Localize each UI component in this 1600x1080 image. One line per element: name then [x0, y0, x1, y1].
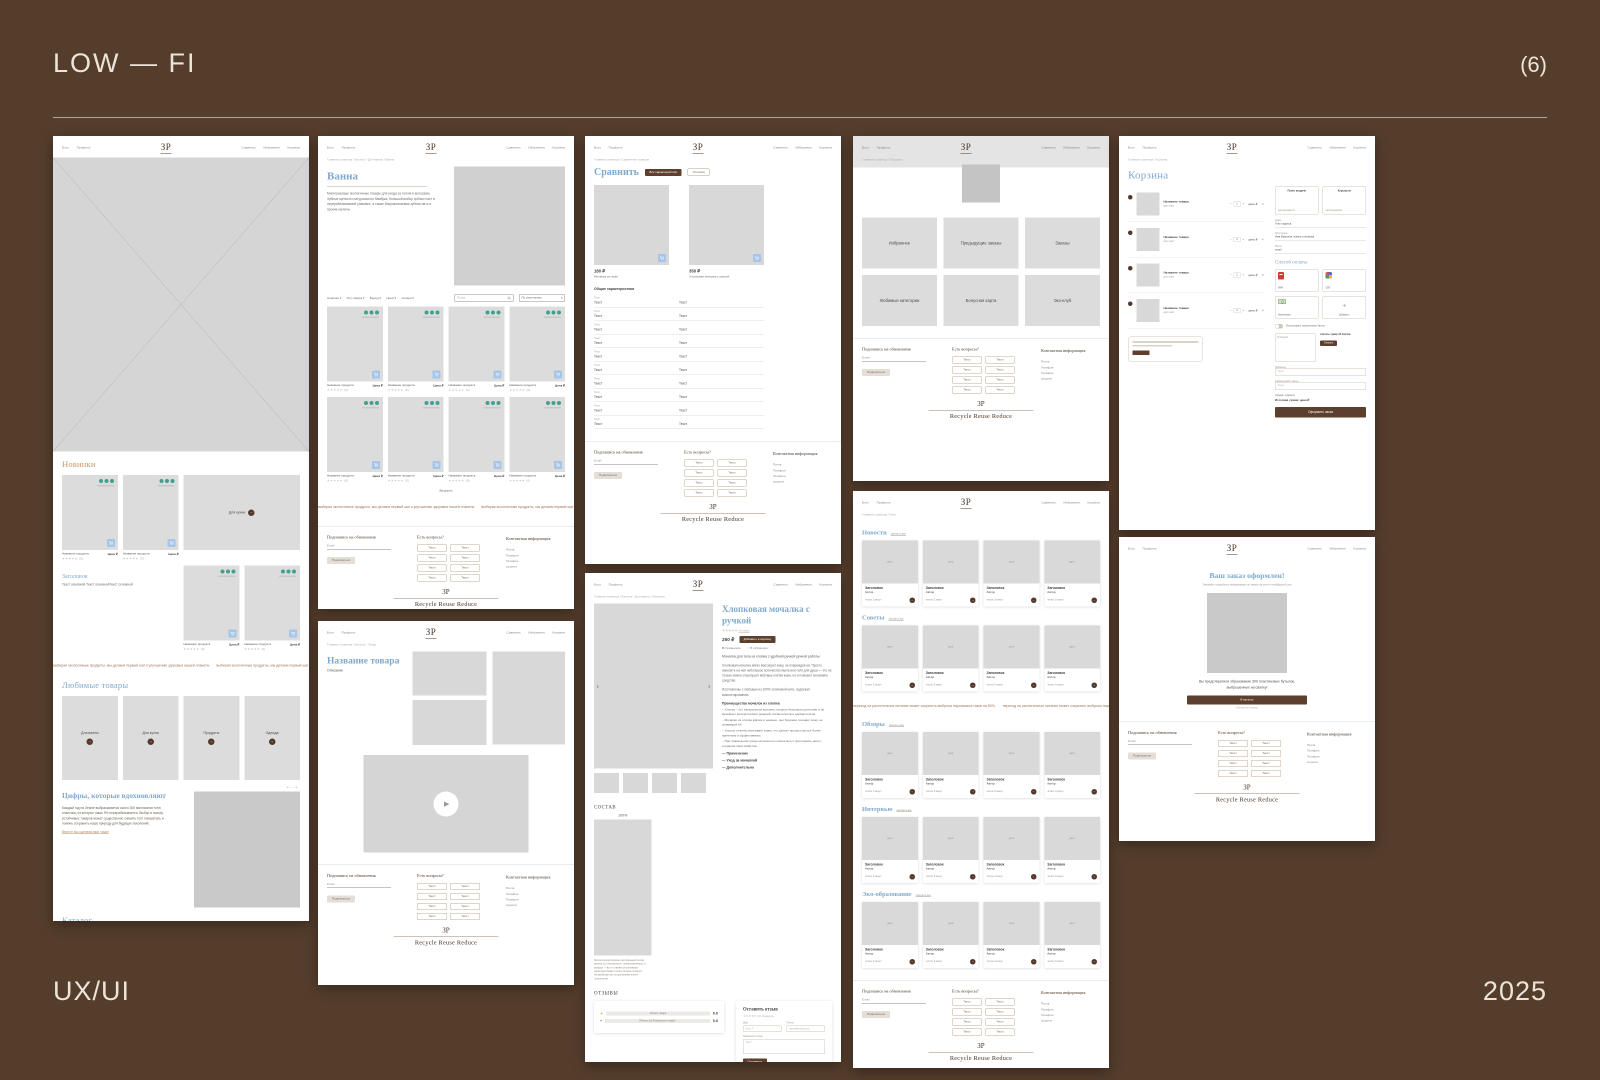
contact-line[interactable]: соцсети — [1041, 1019, 1100, 1025]
quantity-stepper[interactable]: −1+ — [1230, 202, 1244, 207]
faq-button[interactable]: Текст — [952, 999, 982, 1006]
nav-cart-link[interactable]: Корзина — [1354, 547, 1366, 550]
read-time: читать 5 минут — [865, 599, 882, 602]
product-rating: ★★★★★ (0) — [184, 648, 240, 652]
faq-button[interactable]: Текст — [985, 367, 1015, 374]
nav-favorites-link[interactable]: Избранное — [1063, 146, 1080, 149]
blog-card-title: Заголовок — [1047, 863, 1097, 867]
contact-line[interactable]: соцсети — [506, 565, 565, 571]
product-name: Название продукта — [509, 475, 536, 479]
faq-button[interactable]: Текст — [417, 893, 447, 900]
product-card[interactable]: Название продукта Цена ₽ ★★★★★ (0) — [449, 397, 505, 483]
breadcrumb[interactable]: Главная страница / Блог — [853, 513, 1109, 522]
faq-button[interactable]: Текст — [952, 1019, 982, 1026]
add-to-cart-button[interactable]: Добавить в корзину — [739, 636, 775, 643]
product-card[interactable]: Название продукта Цена ₽ ★★★★★ (0) — [244, 566, 300, 652]
carousel-arrows[interactable]: ←→ — [62, 784, 300, 790]
carousel-thumbnails[interactable] — [594, 773, 713, 793]
subscribe-button[interactable]: Подписаться — [862, 369, 890, 376]
faq-button[interactable]: Текст — [1251, 740, 1281, 747]
review-textarea[interactable]: Текст — [743, 1039, 825, 1054]
quantity-stepper[interactable]: −1+ — [1230, 273, 1244, 278]
email-input[interactable]: Email — [594, 460, 658, 465]
product-card[interactable]: Название продукта Цена ₽ ★★★★★ (0) — [123, 475, 179, 561]
faq-button[interactable]: Текст — [1218, 750, 1248, 757]
email-input[interactable]: name@email.com — [787, 1026, 826, 1033]
play-icon[interactable]: ▶ — [434, 791, 459, 816]
payment-option-cash[interactable]: Наличными — [1275, 296, 1319, 319]
add-to-cart-icon[interactable] — [433, 461, 441, 469]
blog-card[interactable]: дата Заголовок Автор читать 5 минут → — [1044, 902, 1100, 968]
faq-button[interactable]: Текст — [450, 883, 480, 890]
compare-product[interactable]: 350 ₽ Хлопковая мочалка с рюшей — [689, 185, 764, 279]
nav-profile-link[interactable]: Профиль — [609, 146, 623, 149]
nav-blog-link[interactable]: Блог — [62, 146, 69, 149]
nav-blog-link[interactable]: Блог — [594, 146, 601, 149]
logo[interactable]: ЗР — [426, 142, 437, 154]
filter-dropdown[interactable]: Новинки ▾ — [327, 296, 341, 300]
add-to-cart-icon[interactable] — [554, 371, 562, 379]
nav-compare-link[interactable]: Сравнить — [506, 631, 521, 634]
faq-button[interactable]: Текст — [417, 555, 447, 562]
add-to-cart-icon[interactable] — [372, 461, 380, 469]
see-all-link[interactable]: смотреть все — [896, 809, 911, 812]
questions-title: Есть вопросы? — [952, 989, 1015, 994]
breadcrumb[interactable]: Главная страница / Каталог / Для ванны /… — [318, 158, 574, 167]
contact-line[interactable]: соцсети — [1041, 377, 1100, 383]
compare-link[interactable]: ⇄ Сравнение — [722, 647, 741, 651]
blog-card[interactable]: дата Заголовок Автор читать 5 минут → — [1044, 626, 1100, 692]
category-banner-kitchen[interactable]: Для кухни→ — [184, 475, 301, 550]
prev-arrow-icon[interactable]: ‹ — [597, 682, 600, 691]
filter-dropdown[interactable]: Скидки ▾ — [401, 296, 413, 300]
email-input[interactable]: Email — [1128, 740, 1192, 745]
blog-card-author: Автор — [987, 676, 1037, 679]
faq-button[interactable]: Текст — [985, 999, 1015, 1006]
nav-blog-link[interactable]: Блог — [862, 146, 869, 149]
profile-avatar[interactable] — [962, 165, 1000, 203]
promo-input[interactable]: Текст — [1275, 369, 1366, 376]
see-all-link[interactable]: смотреть все — [891, 533, 906, 536]
nav-profile-link[interactable]: Профиль — [342, 146, 356, 149]
payment-option-mir[interactable]: МИР — [1275, 269, 1319, 292]
arrow-icon[interactable]: → — [970, 874, 976, 880]
arrow-icon[interactable]: → — [909, 598, 915, 604]
blog-card[interactable]: дата Заголовок Автор читать 5 минут → — [984, 541, 1040, 607]
product-card[interactable]: Название продукта Цена ₽ ★★★★★ (0) — [62, 475, 118, 561]
arrow-icon[interactable]: → — [1092, 959, 1098, 965]
search-input[interactable]: Поиск — [455, 295, 514, 302]
arrow-icon[interactable]: → — [1092, 683, 1098, 689]
faq-button[interactable]: Текст — [450, 575, 480, 582]
faq-button[interactable]: Текст — [450, 893, 480, 900]
blog-card[interactable]: дата Заголовок Автор читать 5 минут → — [1044, 817, 1100, 883]
arrow-icon[interactable]: → — [1092, 874, 1098, 880]
product-card[interactable]: Название продукта Цена ₽ ★★★★★ (0) — [327, 397, 383, 483]
footer-subscribe-block: Подпишись на обновления Email Подписатьс… — [1128, 730, 1192, 777]
faq-button[interactable]: Текст — [1251, 750, 1281, 757]
faq-button[interactable]: Текст — [417, 883, 447, 890]
nav-profile-link[interactable]: Профиль — [1143, 146, 1157, 149]
differences-button[interactable]: Отличия — [688, 169, 710, 177]
nav-compare-link[interactable]: Сравнить — [241, 146, 256, 149]
profile-tile[interactable]: Предыдущие заказы — [944, 218, 1019, 269]
wireframe-compare-page[interactable]: Блог Профиль ЗР Сравнить Избранное Корзи… — [585, 136, 841, 564]
nav-blog-link[interactable]: Блог — [594, 583, 601, 586]
blog-card[interactable]: дата Заголовок Автор читать 5 минут → — [862, 732, 918, 798]
product-image-placeholder — [509, 307, 565, 382]
nav-favorites-link[interactable]: Избранное — [528, 631, 545, 634]
faq-button[interactable]: Текст — [952, 387, 982, 394]
product-carousel[interactable]: ‹ › — [594, 604, 713, 769]
nav-cart-link[interactable]: Корзина — [553, 146, 565, 149]
accordion-item[interactable]: — Дополнительно — [722, 766, 832, 770]
recipient-input[interactable]: Имя Фамилия, номер телефона — [1275, 235, 1366, 241]
nav-blog-link[interactable]: Блог — [862, 501, 869, 504]
nav-favorites-link[interactable]: Избранное — [263, 146, 280, 149]
faq-button[interactable]: Текст — [1251, 760, 1281, 767]
faq-button[interactable]: Текст — [1218, 740, 1248, 747]
blog-card[interactable]: дата Заголовок Автор читать 5 минут → — [1044, 541, 1100, 607]
arrow-icon[interactable]: → — [1031, 874, 1037, 880]
product-card[interactable]: Название продукта Цена ₽ ★★★★★ (0) — [509, 397, 565, 483]
address-input[interactable]: Текст адреса — [1275, 222, 1366, 228]
nav-compare-link[interactable]: Сравнить — [773, 583, 788, 586]
remove-item-icon[interactable]: ✕ — [1261, 309, 1264, 313]
blog-card[interactable]: дата Заголовок Автор читать 5 минут → — [862, 817, 918, 883]
arrow-icon[interactable]: → — [970, 598, 976, 604]
faq-button[interactable]: Текст — [717, 480, 747, 487]
faq-button[interactable]: Текст — [450, 903, 480, 910]
nav-favorites-link[interactable]: Избранное — [1329, 146, 1346, 149]
add-to-cart-icon[interactable] — [493, 461, 501, 469]
logo[interactable]: ЗР — [161, 142, 172, 154]
favorite-link[interactable]: ♡ В избранное — [747, 647, 768, 651]
nav-favorites-link[interactable]: Избранное — [528, 146, 545, 149]
profile-tile[interactable]: Избранное — [862, 218, 937, 269]
blog-card[interactable]: дата Заголовок Автор читать 5 минут → — [862, 541, 918, 607]
nav-profile-link[interactable]: Профиль — [877, 501, 891, 504]
add-to-cart-icon[interactable] — [168, 539, 176, 547]
faq-button[interactable]: Текст — [985, 387, 1015, 394]
subscribe-button[interactable]: Подписаться — [327, 896, 355, 903]
arrow-icon[interactable]: → — [970, 959, 976, 965]
wireframe-blog-page[interactable]: Блог Профиль ЗР Сравнить Избранное Корзи… — [853, 491, 1109, 1068]
faq-button[interactable]: Текст — [417, 913, 447, 920]
nav-profile-link[interactable]: Профиль — [77, 146, 91, 149]
blog-card[interactable]: дата Заголовок Автор читать 5 минут → — [862, 902, 918, 968]
blog-card[interactable]: дата Заголовок Автор читать 5 минут → — [923, 626, 979, 692]
quantity-stepper[interactable]: −1+ — [1230, 237, 1244, 242]
nav-profile-link[interactable]: Профиль — [1143, 547, 1157, 550]
profile-tile[interactable]: Заказы — [1025, 218, 1100, 269]
delivery-option-pickup[interactable]: Пункт выдачирассчитывается — [1275, 187, 1319, 215]
nav-cart-link[interactable]: Корзина — [1088, 501, 1100, 504]
breadcrumb[interactable]: Главная страница / Сравнение товаров — [585, 158, 841, 167]
footer-contacts-block: Контактная информация Почта Телефон Теле… — [1041, 989, 1100, 1036]
nav-profile-link[interactable]: Профиль — [877, 146, 891, 149]
eco-badge-dots — [425, 401, 440, 405]
contacts-title: Контактная информация — [773, 450, 832, 458]
compare-product[interactable]: 180 ₽ Мочалка из лыка — [594, 185, 669, 279]
contact-line[interactable]: соцсети — [773, 480, 832, 486]
add-to-cart-icon[interactable] — [107, 539, 115, 547]
add-to-cart-icon[interactable] — [433, 371, 441, 379]
faq-button[interactable]: Текст — [417, 575, 447, 582]
arrow-icon[interactable]: → — [1031, 683, 1037, 689]
reviews-link[interactable]: Отзывы — [739, 630, 750, 633]
product-card[interactable]: Название продукта Цена ₽ ★★★★★ (0) — [388, 397, 444, 483]
nav-cart-link[interactable]: Корзина — [820, 583, 832, 586]
load-more-button[interactable]: Загрузить — [318, 490, 574, 493]
faq-button[interactable]: Текст — [717, 470, 747, 477]
faq-button[interactable]: Текст — [952, 1029, 982, 1036]
product-card[interactable]: Название продукта Цена ₽ ★★★★★ (0) — [388, 307, 444, 393]
payment-option-add[interactable]: +Добавить — [1323, 296, 1367, 319]
sort-dropdown[interactable]: По умолчанию▾ — [519, 295, 565, 302]
faq-button[interactable]: Текст — [952, 367, 982, 374]
filter-dropdown[interactable]: Тип товара ▾ — [347, 296, 365, 300]
faq-button[interactable]: Текст — [717, 460, 747, 467]
email-input[interactable]: Email — [862, 357, 926, 362]
blog-card[interactable]: дата Заголовок Автор читать 5 минут → — [923, 732, 979, 798]
nav-favorites-link[interactable]: Избранное — [795, 146, 812, 149]
nav-blog-link[interactable]: Блог — [1128, 547, 1135, 550]
logo[interactable]: ЗР — [693, 579, 704, 591]
see-all-link[interactable]: смотреть все — [916, 894, 931, 897]
tooltip-button[interactable] — [1133, 351, 1150, 356]
nav-favorites-link[interactable]: Избранное — [795, 583, 812, 586]
product-card[interactable]: Название продукта Цена ₽ ★★★★★ (0) — [449, 307, 505, 393]
blog-card[interactable]: дата Заголовок Автор читать 5 минут → — [984, 902, 1040, 968]
add-to-cart-icon[interactable] — [753, 254, 761, 262]
points-toggle[interactable] — [1275, 324, 1283, 329]
faq-button[interactable]: Текст — [684, 480, 714, 487]
wireframe-product-page[interactable]: Блог Профиль ЗР Сравнить Избранное Корзи… — [585, 573, 841, 1062]
faq-button[interactable]: Текст — [417, 545, 447, 552]
blog-card[interactable]: дата Заголовок Автор читать 5 минут → — [984, 732, 1040, 798]
select-item-checkbox[interactable] — [1128, 195, 1133, 200]
rate-stars[interactable]: ★★★★★ (0) Оценить — [743, 1015, 825, 1019]
logo[interactable]: ЗР — [1227, 142, 1238, 154]
faq-button[interactable]: Текст — [985, 377, 1015, 384]
select-item-checkbox[interactable] — [1128, 301, 1133, 306]
checkout-button[interactable]: Оформить заказ — [1275, 407, 1366, 418]
blog-card[interactable]: дата Заголовок Автор читать 5 минут → — [984, 626, 1040, 692]
nav-cart-link[interactable]: Корзина — [288, 146, 300, 149]
faq-button[interactable]: Текст — [684, 490, 714, 497]
nav-compare-link[interactable]: Сравнить — [506, 146, 521, 149]
breadcrumb[interactable]: Главная страница / Каталог / Товар — [318, 643, 574, 652]
faq-button[interactable]: Текст — [684, 470, 714, 477]
product-card[interactable]: Название продукта Цена ₽ ★★★★★ (0) — [327, 307, 383, 393]
logo[interactable]: ЗР — [426, 627, 437, 639]
arrow-icon[interactable]: → — [1092, 789, 1098, 795]
name-input[interactable]: Олег Т. — [743, 1026, 782, 1033]
nav-profile-link[interactable]: Профиль — [342, 631, 356, 634]
blog-card-title: Заголовок — [865, 587, 915, 591]
wireframe-category-page[interactable]: Блог Профиль ЗР Сравнить Избранное Корзи… — [318, 136, 574, 609]
filter-dropdown[interactable]: Цена ▾ — [386, 296, 396, 300]
bonus-box[interactable]: В бонусах — [1275, 334, 1316, 362]
product-image-placeholder — [327, 397, 383, 472]
add-to-cart-icon[interactable] — [289, 630, 297, 638]
subscribe-button[interactable]: Подписаться — [1128, 752, 1156, 759]
subscribe-button[interactable]: Подписаться — [594, 472, 622, 479]
faq-button[interactable]: Текст — [717, 490, 747, 497]
faq-button[interactable]: Текст — [450, 565, 480, 572]
profile-tile[interactable]: Бонусная карта — [944, 275, 1019, 326]
select-item-checkbox[interactable] — [1128, 266, 1133, 271]
faq-button[interactable]: Текст — [450, 555, 480, 562]
nav-compare-link[interactable]: Сравнить — [1307, 146, 1322, 149]
faq-button[interactable]: Текст — [985, 1029, 1015, 1036]
nav-cart-link[interactable]: Корзина — [820, 146, 832, 149]
nav-blog-link[interactable]: Блог — [1128, 146, 1135, 149]
breadcrumb[interactable]: Главная страница / Каталог / Для ванны /… — [585, 595, 841, 604]
blog-card[interactable]: дата Заголовок Автор читать 5 минут → — [923, 902, 979, 968]
arrow-icon[interactable]: → — [970, 789, 976, 795]
logo[interactable]: ЗР — [961, 497, 972, 509]
faq-button[interactable]: Текст — [417, 903, 447, 910]
breadcrumb[interactable]: Главная страница / Корзина — [1119, 158, 1375, 167]
arrow-icon[interactable]: → — [1031, 789, 1037, 795]
faq-button[interactable]: Текст — [985, 357, 1015, 364]
next-arrow-icon[interactable]: › — [708, 682, 711, 691]
logo[interactable]: ЗР — [1227, 543, 1238, 555]
blog-card[interactable]: дата Заголовок Автор читать 5 минут → — [984, 817, 1040, 883]
wireframe-site-header: Блог Профиль ЗР Сравнить Избранное Корзи… — [585, 136, 841, 158]
remove-item-icon[interactable]: ✕ — [1261, 238, 1264, 242]
logo[interactable]: ЗР — [693, 142, 704, 154]
contact-line[interactable]: соцсети — [1307, 760, 1366, 766]
faq-button[interactable]: Текст — [450, 545, 480, 552]
advantage-item: – Мочалки из хлопка мягкие и нежные, они… — [722, 718, 832, 728]
to-catalog-button[interactable]: В каталог — [1187, 695, 1307, 704]
faq-button[interactable]: Текст — [985, 1019, 1015, 1026]
nav-compare-link[interactable]: Сравнить — [1307, 547, 1322, 550]
email-input[interactable]: Email — [327, 883, 391, 888]
accordion-item[interactable]: — Применение — [722, 752, 832, 756]
nav-cart-link[interactable]: Корзина — [553, 631, 565, 634]
quantity-stepper[interactable]: −1+ — [1230, 308, 1244, 313]
nav-profile-link[interactable]: Профиль — [609, 583, 623, 586]
arrow-icon[interactable]: → — [909, 789, 915, 795]
comment-input[interactable]: Текст — [1275, 383, 1366, 390]
category-card[interactable]: Продукты→ — [184, 696, 240, 780]
add-to-cart-icon[interactable] — [554, 461, 562, 469]
faq-button[interactable]: Текст — [1218, 760, 1248, 767]
arrow-icon[interactable]: → — [970, 683, 976, 689]
product-price: Цена ₽ — [229, 643, 239, 647]
faq-button[interactable]: Текст — [1251, 770, 1281, 777]
contact-line[interactable]: соцсети — [506, 903, 565, 909]
payment-option-sbp[interactable]: СБП — [1323, 269, 1367, 292]
subscribe-button[interactable]: Подписаться — [862, 1011, 890, 1018]
email-input[interactable]: email — [1275, 248, 1366, 254]
faq-button[interactable]: Текст — [952, 357, 982, 364]
subscribe-button[interactable]: Подписаться — [327, 557, 355, 564]
numbers-link[interactable]: Вместе мы сделаем мир чище! — [62, 831, 109, 835]
footer-subscribe-block: Подпишись на обновления Email Подписатьс… — [327, 873, 391, 920]
blog-card[interactable]: дата Заголовок Автор читать 5 минут → — [923, 541, 979, 607]
arrow-icon[interactable]: → — [909, 959, 915, 965]
nav-cart-link[interactable]: Корзина — [1354, 146, 1366, 149]
wireframe-product-template-page[interactable]: Блог Профиль ЗР Сравнить Избранное Корзи… — [318, 621, 574, 985]
nav-compare-link[interactable]: Сравнить — [1041, 146, 1056, 149]
nav-compare-link[interactable]: Сравнить — [773, 146, 788, 149]
faq-button[interactable]: Текст — [417, 565, 447, 572]
video-placeholder[interactable]: ▶ — [364, 755, 529, 853]
wireframe-homepage[interactable]: Блог Профиль ЗР Сравнить Избранное Корзи… — [53, 136, 309, 921]
blog-card[interactable]: дата Заголовок Автор читать 5 минут → — [862, 626, 918, 692]
nav-cart-link[interactable]: Корзина — [1088, 146, 1100, 149]
see-all-link[interactable]: смотреть все — [888, 618, 903, 621]
accordion-item[interactable]: — Уход за мочалкой — [722, 759, 832, 763]
submit-review-button[interactable]: Отправить — [743, 1059, 767, 1062]
add-to-cart-icon[interactable] — [228, 630, 236, 638]
profile-tile[interactable]: Любимые категории — [862, 275, 937, 326]
nav-blog-link[interactable]: Блог — [327, 631, 334, 634]
add-to-cart-icon[interactable] — [658, 254, 666, 262]
faq-button[interactable]: Текст — [450, 913, 480, 920]
nav-favorites-link[interactable]: Избранное — [1329, 547, 1346, 550]
remove-item-icon[interactable]: ✕ — [1261, 273, 1264, 277]
arrow-icon[interactable]: → — [1092, 598, 1098, 604]
nav-favorites-link[interactable]: Избранное — [1063, 501, 1080, 504]
spend-points-button[interactable]: Списать — [1320, 340, 1337, 346]
email-input[interactable]: Email — [862, 999, 926, 1004]
delivery-option-courier[interactable]: Курьеромрассчитывается — [1323, 187, 1367, 215]
faq-button[interactable]: Текст — [952, 1009, 982, 1016]
all-specs-button[interactable]: Все характеристики — [645, 169, 682, 176]
wireframe-cart-page[interactable]: Блог Профиль ЗР Сравнить Избранное Корзи… — [1119, 136, 1375, 530]
faq-button[interactable]: Текст — [1218, 770, 1248, 777]
arrow-icon[interactable]: → — [1031, 959, 1037, 965]
add-to-cart-icon[interactable] — [493, 371, 501, 379]
category-card[interactable]: Для ванны→ — [62, 696, 118, 780]
blog-card[interactable]: дата Заголовок Автор читать 5 минут → — [1044, 732, 1100, 798]
select-item-checkbox[interactable] — [1128, 230, 1133, 235]
product-card[interactable]: Название продукта Цена ₽ ★★★★★ (0) — [184, 566, 240, 652]
filter-dropdown[interactable]: Бренд ▾ — [370, 296, 381, 300]
see-all-link[interactable]: смотреть все — [889, 724, 904, 727]
profile-tile[interactable]: Эко-клуб — [1025, 275, 1100, 326]
blog-card[interactable]: дата Заголовок Автор читать 5 минут → — [923, 817, 979, 883]
wireframe-order-confirmation-page[interactable]: Блог Профиль ЗР Сравнить Избранное Корзи… — [1119, 537, 1375, 841]
nav-compare-link[interactable]: Сравнить — [1041, 501, 1056, 504]
faq-button[interactable]: Текст — [985, 1009, 1015, 1016]
category-card[interactable]: Для кухни→ — [123, 696, 179, 780]
blog-card-image: дата — [862, 732, 918, 775]
email-input[interactable]: Email — [327, 545, 391, 550]
nav-blog-link[interactable]: Блог — [327, 146, 334, 149]
faq-button[interactable]: Текст — [952, 377, 982, 384]
bonus-note: списать сумму 20 баллов — [1320, 334, 1351, 337]
logo[interactable]: ЗР — [961, 142, 972, 154]
composition-value: 100% — [594, 814, 652, 818]
remove-item-icon[interactable]: ✕ — [1261, 202, 1264, 206]
arrow-icon[interactable]: → — [909, 874, 915, 880]
arrow-icon[interactable]: → — [1031, 598, 1037, 604]
faq-button[interactable]: Текст — [684, 460, 714, 467]
composition-title: СОСТАВ — [594, 805, 713, 810]
arrow-icon[interactable]: → — [909, 683, 915, 689]
product-card[interactable]: Название продукта Цена ₽ ★★★★★ (0) — [509, 307, 565, 393]
category-card[interactable]: Одежда→ — [244, 696, 300, 780]
wireframe-profile-page[interactable]: Блог Профиль ЗР Сравнить Избранное Корзи… — [853, 136, 1109, 481]
add-to-cart-icon[interactable] — [372, 371, 380, 379]
